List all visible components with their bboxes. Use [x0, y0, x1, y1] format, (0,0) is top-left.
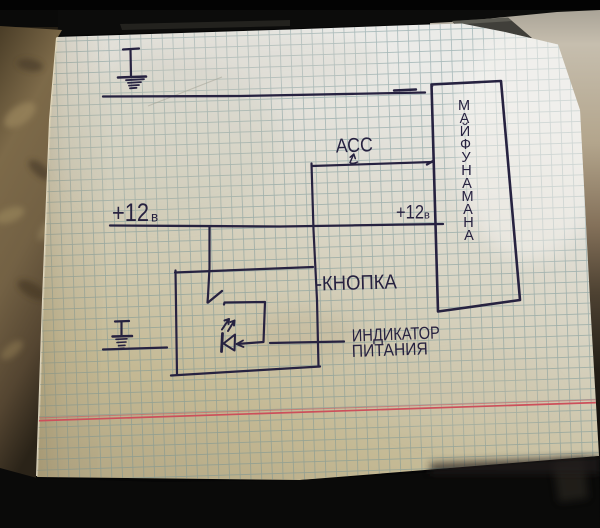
svg-text:+12: +12 — [112, 199, 149, 227]
svg-text:ПИТАНИЯ: ПИТАНИЯ — [351, 338, 428, 361]
svg-text:в: в — [424, 210, 430, 222]
svg-text:-КНОПКА: -КНОПКА — [316, 270, 398, 295]
svg-text:в: в — [151, 210, 158, 225]
svg-text:+12: +12 — [396, 203, 424, 224]
svg-text:АСС: АСС — [335, 134, 373, 157]
svg-text:А: А — [464, 228, 474, 244]
